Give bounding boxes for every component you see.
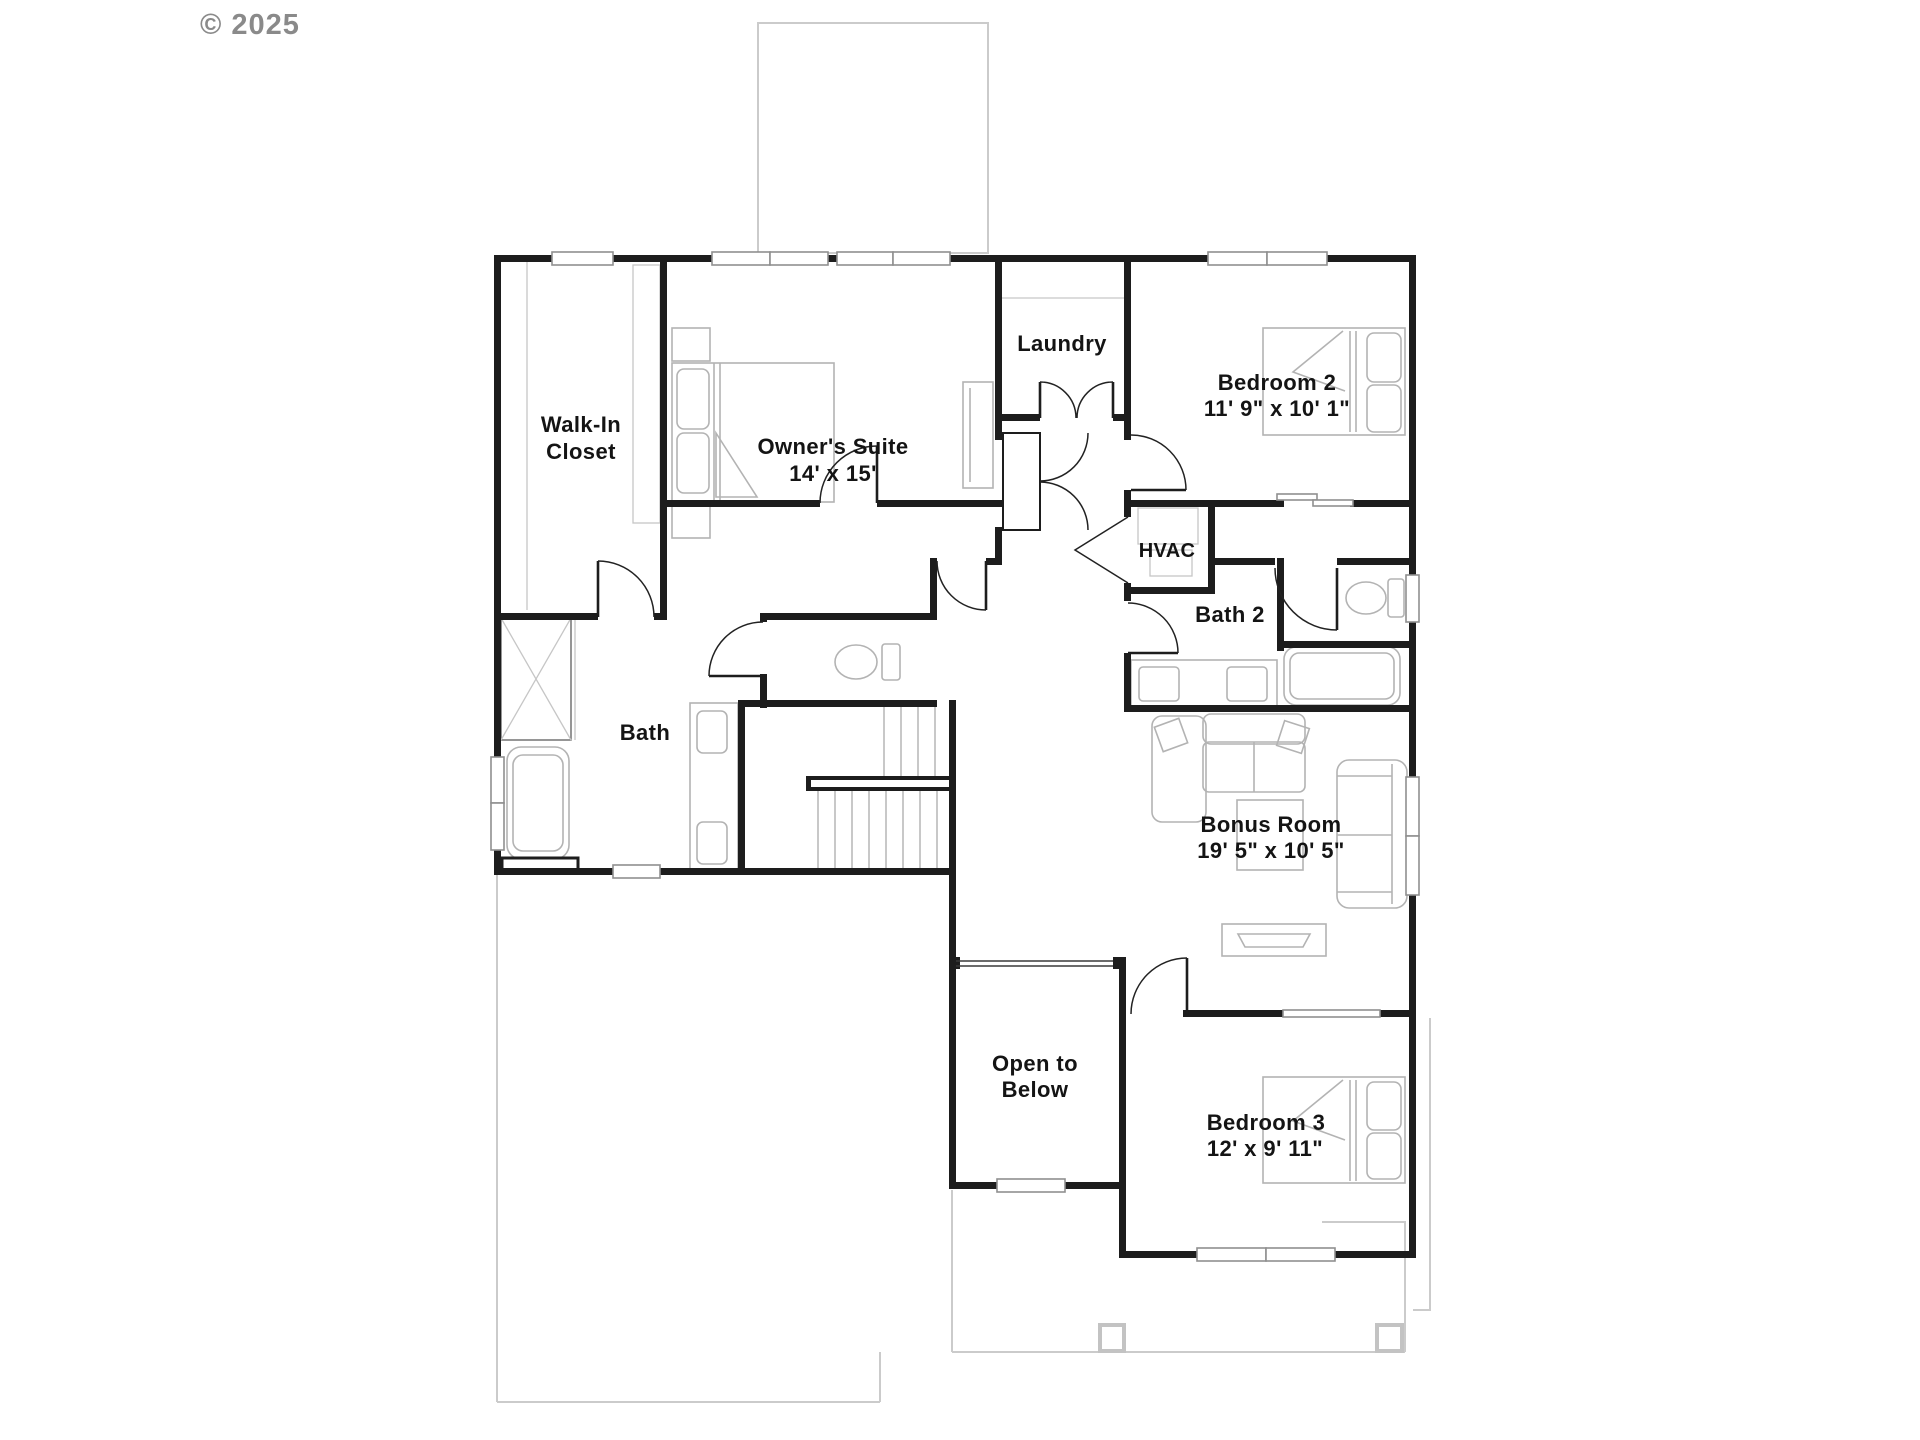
loveseat xyxy=(1337,760,1407,908)
label-open-to-below-line2: Below xyxy=(1002,1077,1069,1102)
wall-stair-west xyxy=(738,700,745,875)
wall-wic-south-b xyxy=(654,613,667,620)
closet-shelf xyxy=(633,265,660,523)
wall-bedroom3-north-b xyxy=(1380,1010,1416,1017)
wall-open-below-east xyxy=(1119,957,1126,1187)
wall-owners-east xyxy=(995,255,1002,440)
window xyxy=(997,1179,1065,1192)
window xyxy=(770,252,828,265)
toilet-bowl xyxy=(1346,582,1386,614)
wall-bedroom3-north-a xyxy=(1183,1010,1283,1017)
wall-hall-connector xyxy=(930,558,937,620)
porch-post xyxy=(1377,1325,1402,1351)
window xyxy=(712,252,770,265)
bathtub xyxy=(1284,647,1400,705)
door-arc-hall xyxy=(937,561,986,610)
label-bonus-room: Bonus Room xyxy=(1201,812,1342,837)
sink xyxy=(697,822,727,864)
wall-wc-west-a xyxy=(760,613,767,622)
dresser xyxy=(963,382,993,488)
window xyxy=(1406,777,1419,836)
sectional-chaise xyxy=(1152,716,1206,822)
wall-bath2-divider xyxy=(1277,558,1284,651)
wall-owners-south-b xyxy=(877,500,1002,507)
label-walk-in-closet-line1: Walk-In xyxy=(541,412,621,437)
window xyxy=(491,757,504,803)
wall-closet-south-b xyxy=(1337,558,1416,565)
throw-pillow xyxy=(1154,718,1187,751)
door-arc-bath xyxy=(709,622,763,676)
wall-laundry-south-a xyxy=(995,414,1040,421)
door-arc-landing-lower xyxy=(1040,482,1088,530)
porch-post xyxy=(1100,1325,1124,1351)
stair-railing-inner xyxy=(811,780,951,787)
wall-laundry-east xyxy=(1124,255,1131,440)
tv-console xyxy=(1222,924,1326,956)
wall-bedroom3-west-lower xyxy=(1119,1185,1126,1258)
door-arc-bath2 xyxy=(1128,603,1178,653)
wall-hall-top xyxy=(986,558,1002,565)
label-hvac: HVAC xyxy=(1139,540,1195,562)
wall-bath2-west-b xyxy=(1124,653,1131,712)
wall-bath2-west-a xyxy=(1124,594,1131,601)
label-bedroom2-dims: 11' 9" x 10' 1" xyxy=(1204,396,1350,421)
window xyxy=(613,865,660,878)
floor-plan-drawing: © 2025 Walk-In Closet Owner's Suite 14' … xyxy=(0,0,1920,1440)
blanket-fold xyxy=(716,433,757,497)
toilet-bowl xyxy=(835,645,877,679)
label-walk-in-closet-line2: Closet xyxy=(546,439,616,464)
door-arc-bedroom2 xyxy=(1131,435,1186,490)
wall-open-below-west xyxy=(949,865,956,1189)
wall-right xyxy=(1409,255,1416,1258)
wall-tub-nook xyxy=(1277,641,1416,648)
wall-hvac-south xyxy=(1124,587,1215,594)
pillow xyxy=(677,369,709,429)
ghost-box-top xyxy=(758,23,988,253)
label-bedroom3-dims: 12' x 9' 11" xyxy=(1207,1136,1323,1161)
wall-left-section-south xyxy=(494,868,956,875)
nightstand xyxy=(672,328,710,361)
wall-hvac-east xyxy=(1208,500,1215,594)
sink xyxy=(1227,667,1267,701)
furnace xyxy=(1138,508,1198,544)
window xyxy=(552,252,613,265)
linen-closet xyxy=(501,618,575,740)
wall-closet-south-a xyxy=(1208,558,1275,565)
label-open-to-below-line1: Open to xyxy=(992,1051,1078,1076)
sectional-back xyxy=(1203,714,1305,744)
window xyxy=(491,803,504,850)
window xyxy=(1197,1248,1266,1261)
wall-bath2-south xyxy=(1124,705,1416,712)
staircase xyxy=(806,707,956,868)
toilet-tank xyxy=(1388,579,1404,617)
bypass-door xyxy=(1277,494,1317,500)
lower-floor-ghost-outline xyxy=(497,23,1430,1402)
wall-railing-cap-left xyxy=(949,957,960,969)
ghost-porch-right xyxy=(1322,1222,1405,1352)
window xyxy=(1406,836,1419,895)
wall-wc-north xyxy=(760,613,937,620)
pillow xyxy=(1367,333,1401,382)
wall-bedroom2-south-a xyxy=(1208,500,1284,507)
label-bedroom2: Bedroom 2 xyxy=(1218,370,1337,395)
label-bedroom3: Bedroom 3 xyxy=(1207,1110,1326,1135)
pillow xyxy=(1367,1133,1401,1179)
toilet-tank xyxy=(882,644,900,680)
sink xyxy=(697,711,727,753)
toilet-water-closet xyxy=(835,644,900,680)
window xyxy=(893,252,950,265)
wall-stair-north xyxy=(742,700,937,707)
sink xyxy=(1139,667,1179,701)
window xyxy=(1266,1248,1335,1261)
interior-sidelite xyxy=(1283,1010,1380,1017)
wall-owners-south-a xyxy=(660,500,820,507)
pillow xyxy=(677,433,709,493)
wall-hvac-north xyxy=(1124,500,1215,507)
window xyxy=(1208,252,1267,265)
door-arc-laundry-left xyxy=(1040,382,1076,418)
bathtub-inner xyxy=(1290,653,1394,699)
bypass-door xyxy=(1313,500,1353,506)
owners-suite-dresser xyxy=(963,382,993,488)
label-laundry: Laundry xyxy=(1017,331,1107,356)
wall-stair-east xyxy=(949,700,956,872)
bathtub-inner xyxy=(513,755,563,851)
label-owners-suite-dims: 14' x 15' xyxy=(789,461,876,486)
door-arc-bedroom3 xyxy=(1131,958,1187,1014)
bathtub xyxy=(507,747,569,859)
door-leaf-landing-double xyxy=(1003,433,1040,530)
nightstand xyxy=(672,505,710,538)
room-labels: © 2025 Walk-In Closet Owner's Suite 14' … xyxy=(200,9,1350,1161)
label-bath: Bath xyxy=(620,720,671,745)
pillow xyxy=(1367,385,1401,432)
window xyxy=(837,252,893,265)
door-arc-wic xyxy=(598,561,654,617)
window xyxy=(1267,252,1327,265)
wall-bedroom2-south-b xyxy=(1350,500,1416,507)
wall-wic-east xyxy=(660,255,667,620)
copyright-text: © 2025 xyxy=(200,9,300,41)
wall-wic-south-a xyxy=(494,613,598,620)
door-arc-bath2-wc xyxy=(1275,568,1337,630)
door-hvac-wedge xyxy=(1075,517,1128,583)
tv xyxy=(1238,934,1310,947)
pillow xyxy=(1367,1082,1401,1130)
label-owners-suite: Owner's Suite xyxy=(757,434,908,459)
door-arc-landing-upper xyxy=(1040,433,1088,481)
floor-plan-page: © 2025 Walk-In Closet Owner's Suite 14' … xyxy=(0,0,1920,1440)
window xyxy=(1406,575,1419,622)
label-bath2: Bath 2 xyxy=(1195,602,1265,627)
door-arc-laundry-right xyxy=(1077,382,1113,418)
label-bonus-room-dims: 19' 5" x 10' 5" xyxy=(1197,838,1344,863)
